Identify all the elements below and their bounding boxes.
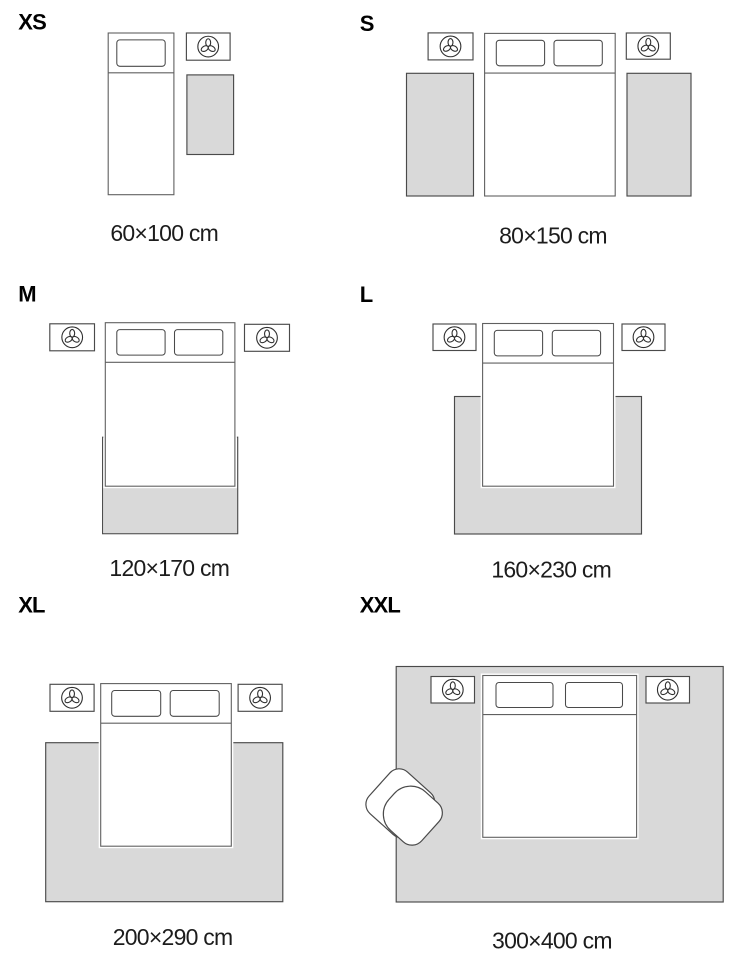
- svg-text:80×150 cm: 80×150 cm: [499, 222, 607, 248]
- svg-text:S: S: [360, 11, 374, 36]
- svg-text:L: L: [360, 282, 373, 307]
- svg-text:120×170 cm: 120×170 cm: [109, 555, 229, 581]
- svg-text:M: M: [18, 282, 36, 307]
- svg-text:300×400 cm: 300×400 cm: [492, 927, 612, 953]
- svg-text:60×100 cm: 60×100 cm: [110, 220, 218, 246]
- svg-text:XL: XL: [18, 593, 45, 618]
- svg-text:XXL: XXL: [360, 593, 401, 618]
- svg-text:XS: XS: [18, 10, 46, 35]
- svg-text:200×290 cm: 200×290 cm: [113, 924, 233, 950]
- svg-text:160×230 cm: 160×230 cm: [491, 557, 611, 583]
